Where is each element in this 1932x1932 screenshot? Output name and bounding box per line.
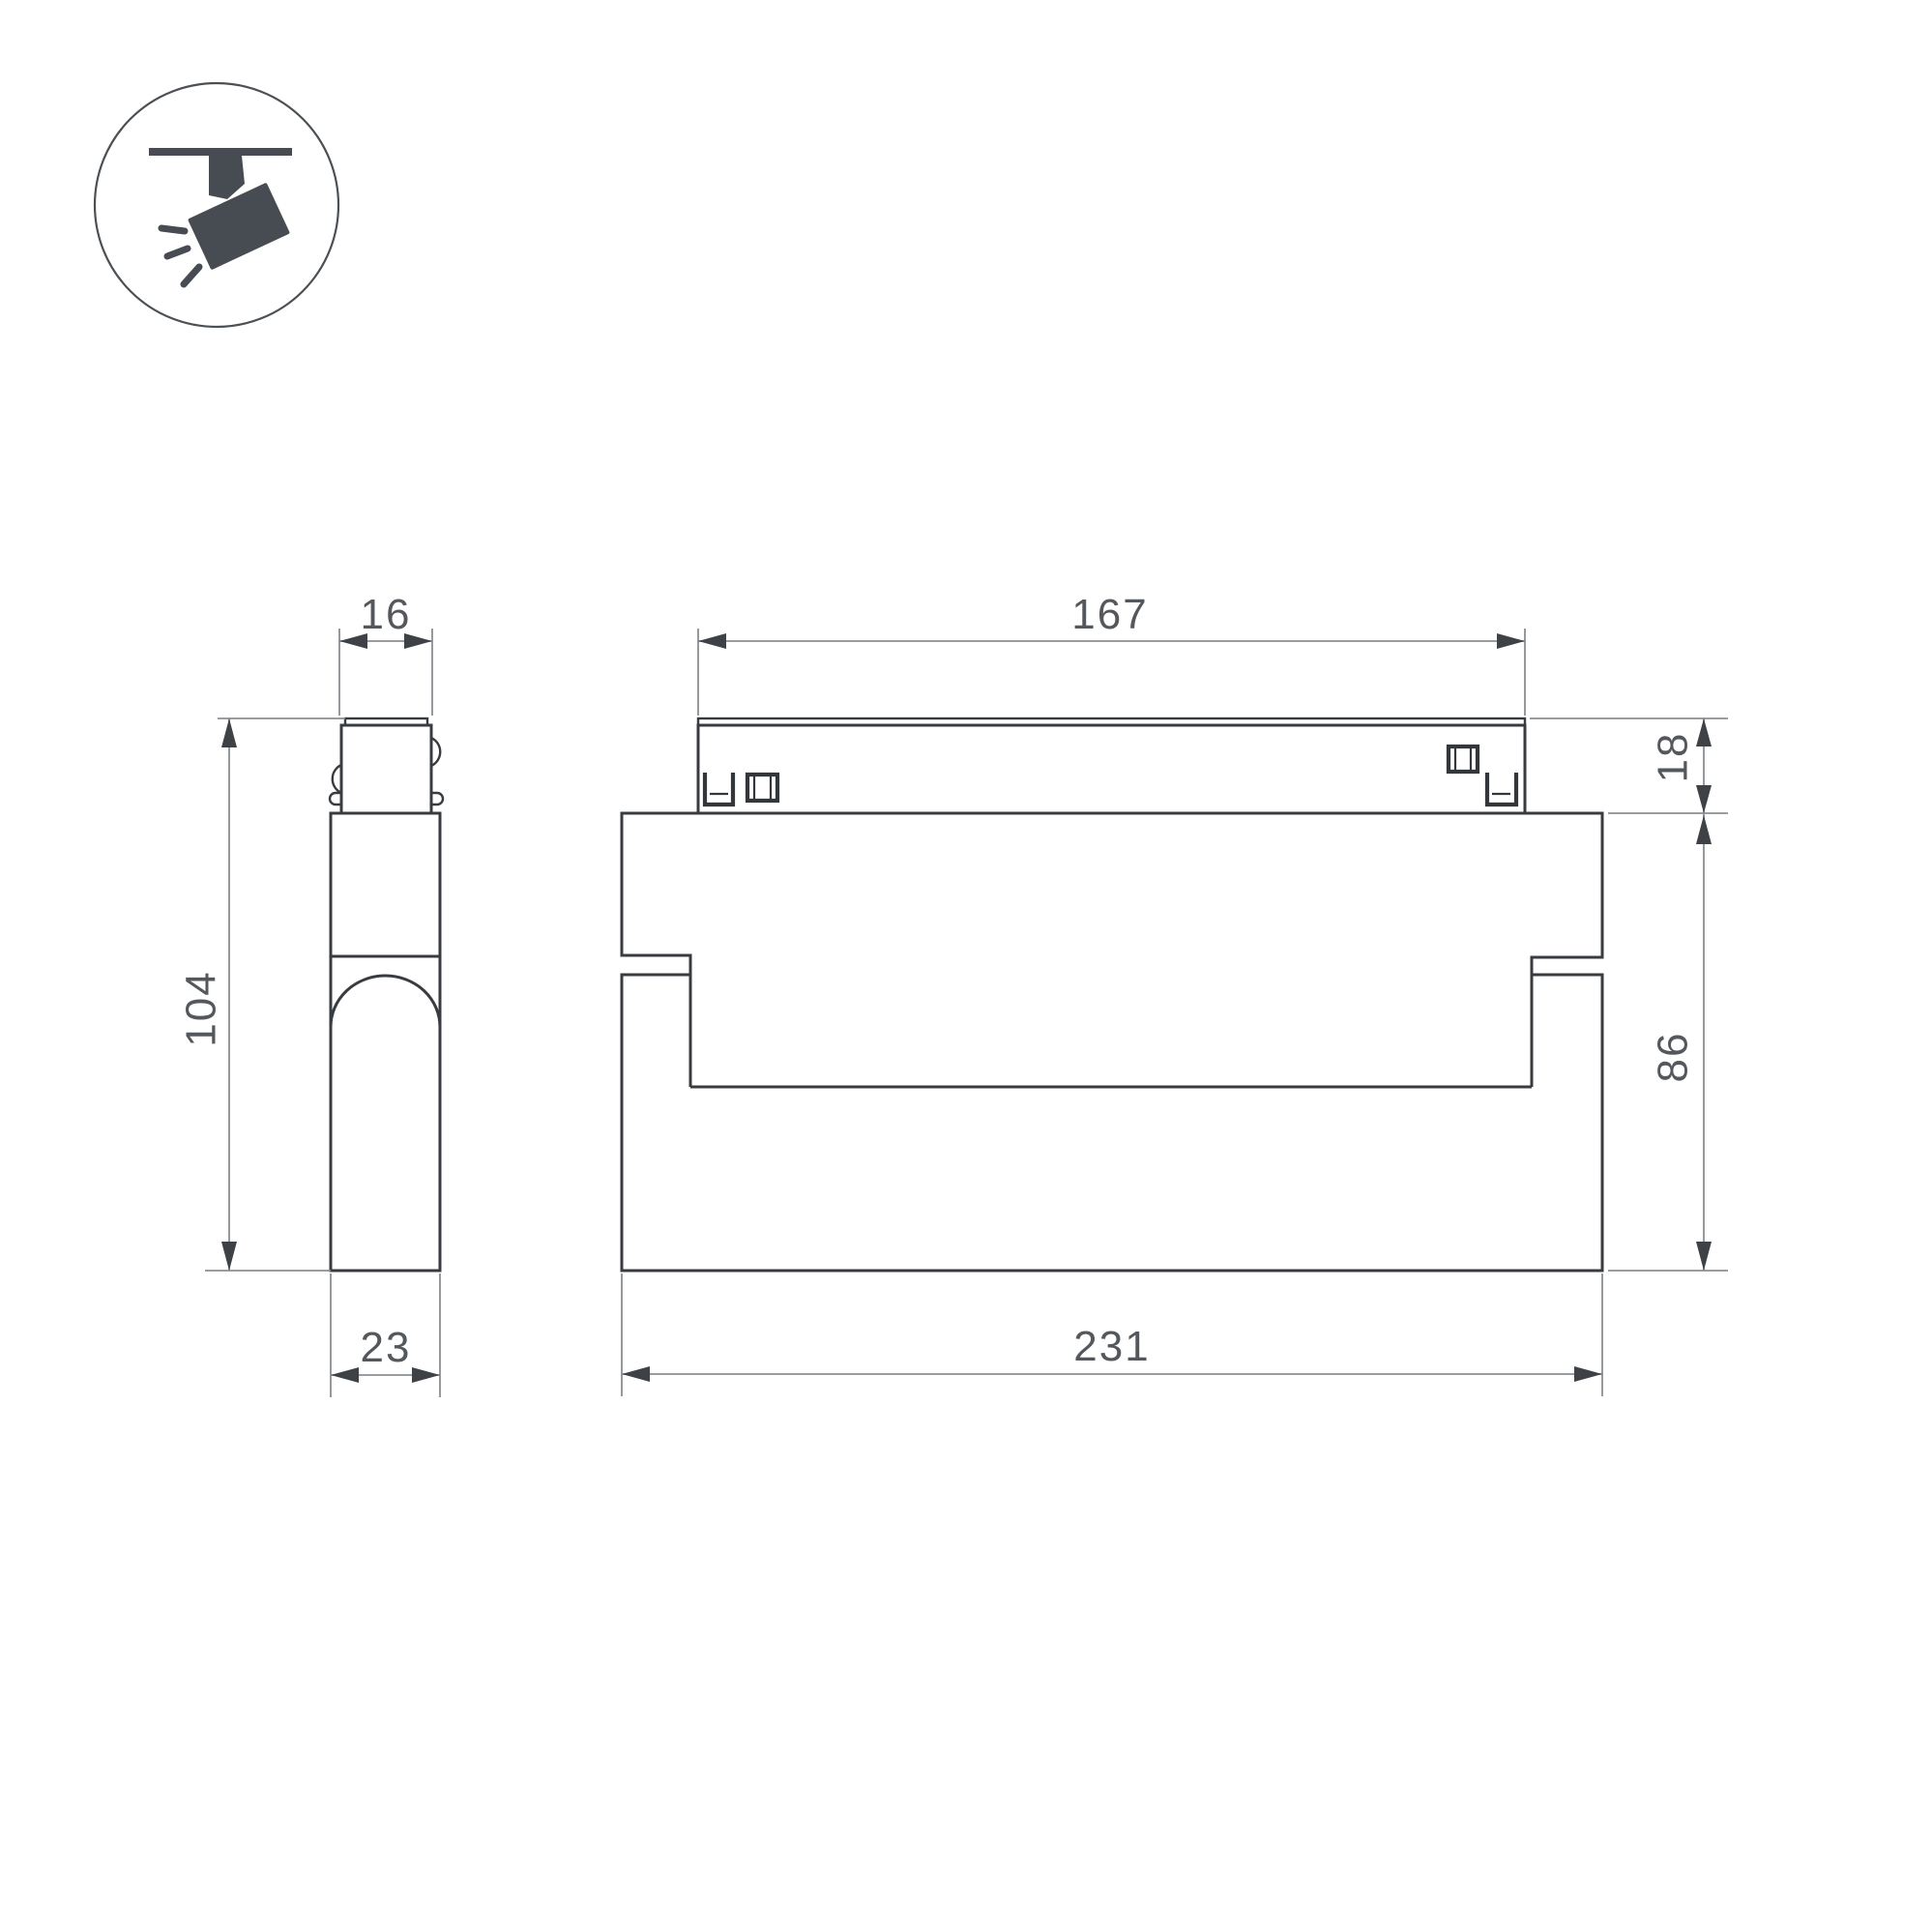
dim-label-86: 86 bbox=[1649, 1032, 1696, 1083]
arrow-up bbox=[1696, 815, 1712, 844]
front-adapter-body bbox=[698, 725, 1525, 813]
side-connector-body bbox=[341, 725, 431, 813]
dim-label-231: 231 bbox=[1073, 1323, 1150, 1370]
arrow-right bbox=[412, 1367, 440, 1383]
arrow-down bbox=[1696, 1242, 1712, 1271]
arrow-right bbox=[1574, 1366, 1602, 1382]
dim-side-track-width: 16 bbox=[339, 591, 432, 716]
front-body-outline bbox=[622, 813, 1602, 1271]
side-body-outline bbox=[331, 813, 440, 1271]
track-spotlight-badge bbox=[95, 83, 338, 327]
dim-front-body-height: 86 bbox=[1608, 813, 1728, 1271]
dim-side-height: 104 bbox=[177, 718, 345, 1271]
arrow-down bbox=[221, 1242, 237, 1271]
track-rail-icon bbox=[149, 148, 292, 156]
arrow-left bbox=[622, 1366, 650, 1382]
dim-label-167: 167 bbox=[1071, 591, 1148, 638]
dim-label-16: 16 bbox=[361, 591, 412, 638]
front-left-u-clip bbox=[705, 773, 733, 805]
dim-label-23: 23 bbox=[361, 1324, 412, 1371]
dim-front-adapter-height: 18 bbox=[1530, 718, 1728, 813]
front-right-square-clip bbox=[1449, 746, 1478, 772]
arrow-up bbox=[1696, 718, 1712, 746]
side-body-arch bbox=[331, 976, 440, 1027]
front-left-square-clip bbox=[747, 775, 777, 801]
badge-circle bbox=[95, 83, 338, 327]
side-right-tab bbox=[431, 793, 443, 805]
dim-label-18: 18 bbox=[1649, 732, 1696, 783]
dimension-drawing-canvas: 16 104 23 167 18 bbox=[0, 0, 1932, 1932]
arrow-left bbox=[698, 633, 726, 649]
dim-front-adapter-length: 167 bbox=[698, 591, 1525, 716]
front-right-u-clip bbox=[1487, 773, 1516, 805]
arrow-left bbox=[331, 1367, 359, 1383]
dim-label-104: 104 bbox=[177, 970, 224, 1046]
arrow-up bbox=[221, 718, 237, 747]
dim-side-depth: 23 bbox=[331, 1273, 440, 1397]
dim-front-body-length: 231 bbox=[622, 1273, 1602, 1396]
arrow-right bbox=[1497, 633, 1525, 649]
side-view bbox=[330, 718, 443, 1271]
front-view bbox=[622, 718, 1602, 1271]
arrow-down bbox=[1696, 785, 1712, 813]
side-left-tab bbox=[330, 793, 341, 805]
